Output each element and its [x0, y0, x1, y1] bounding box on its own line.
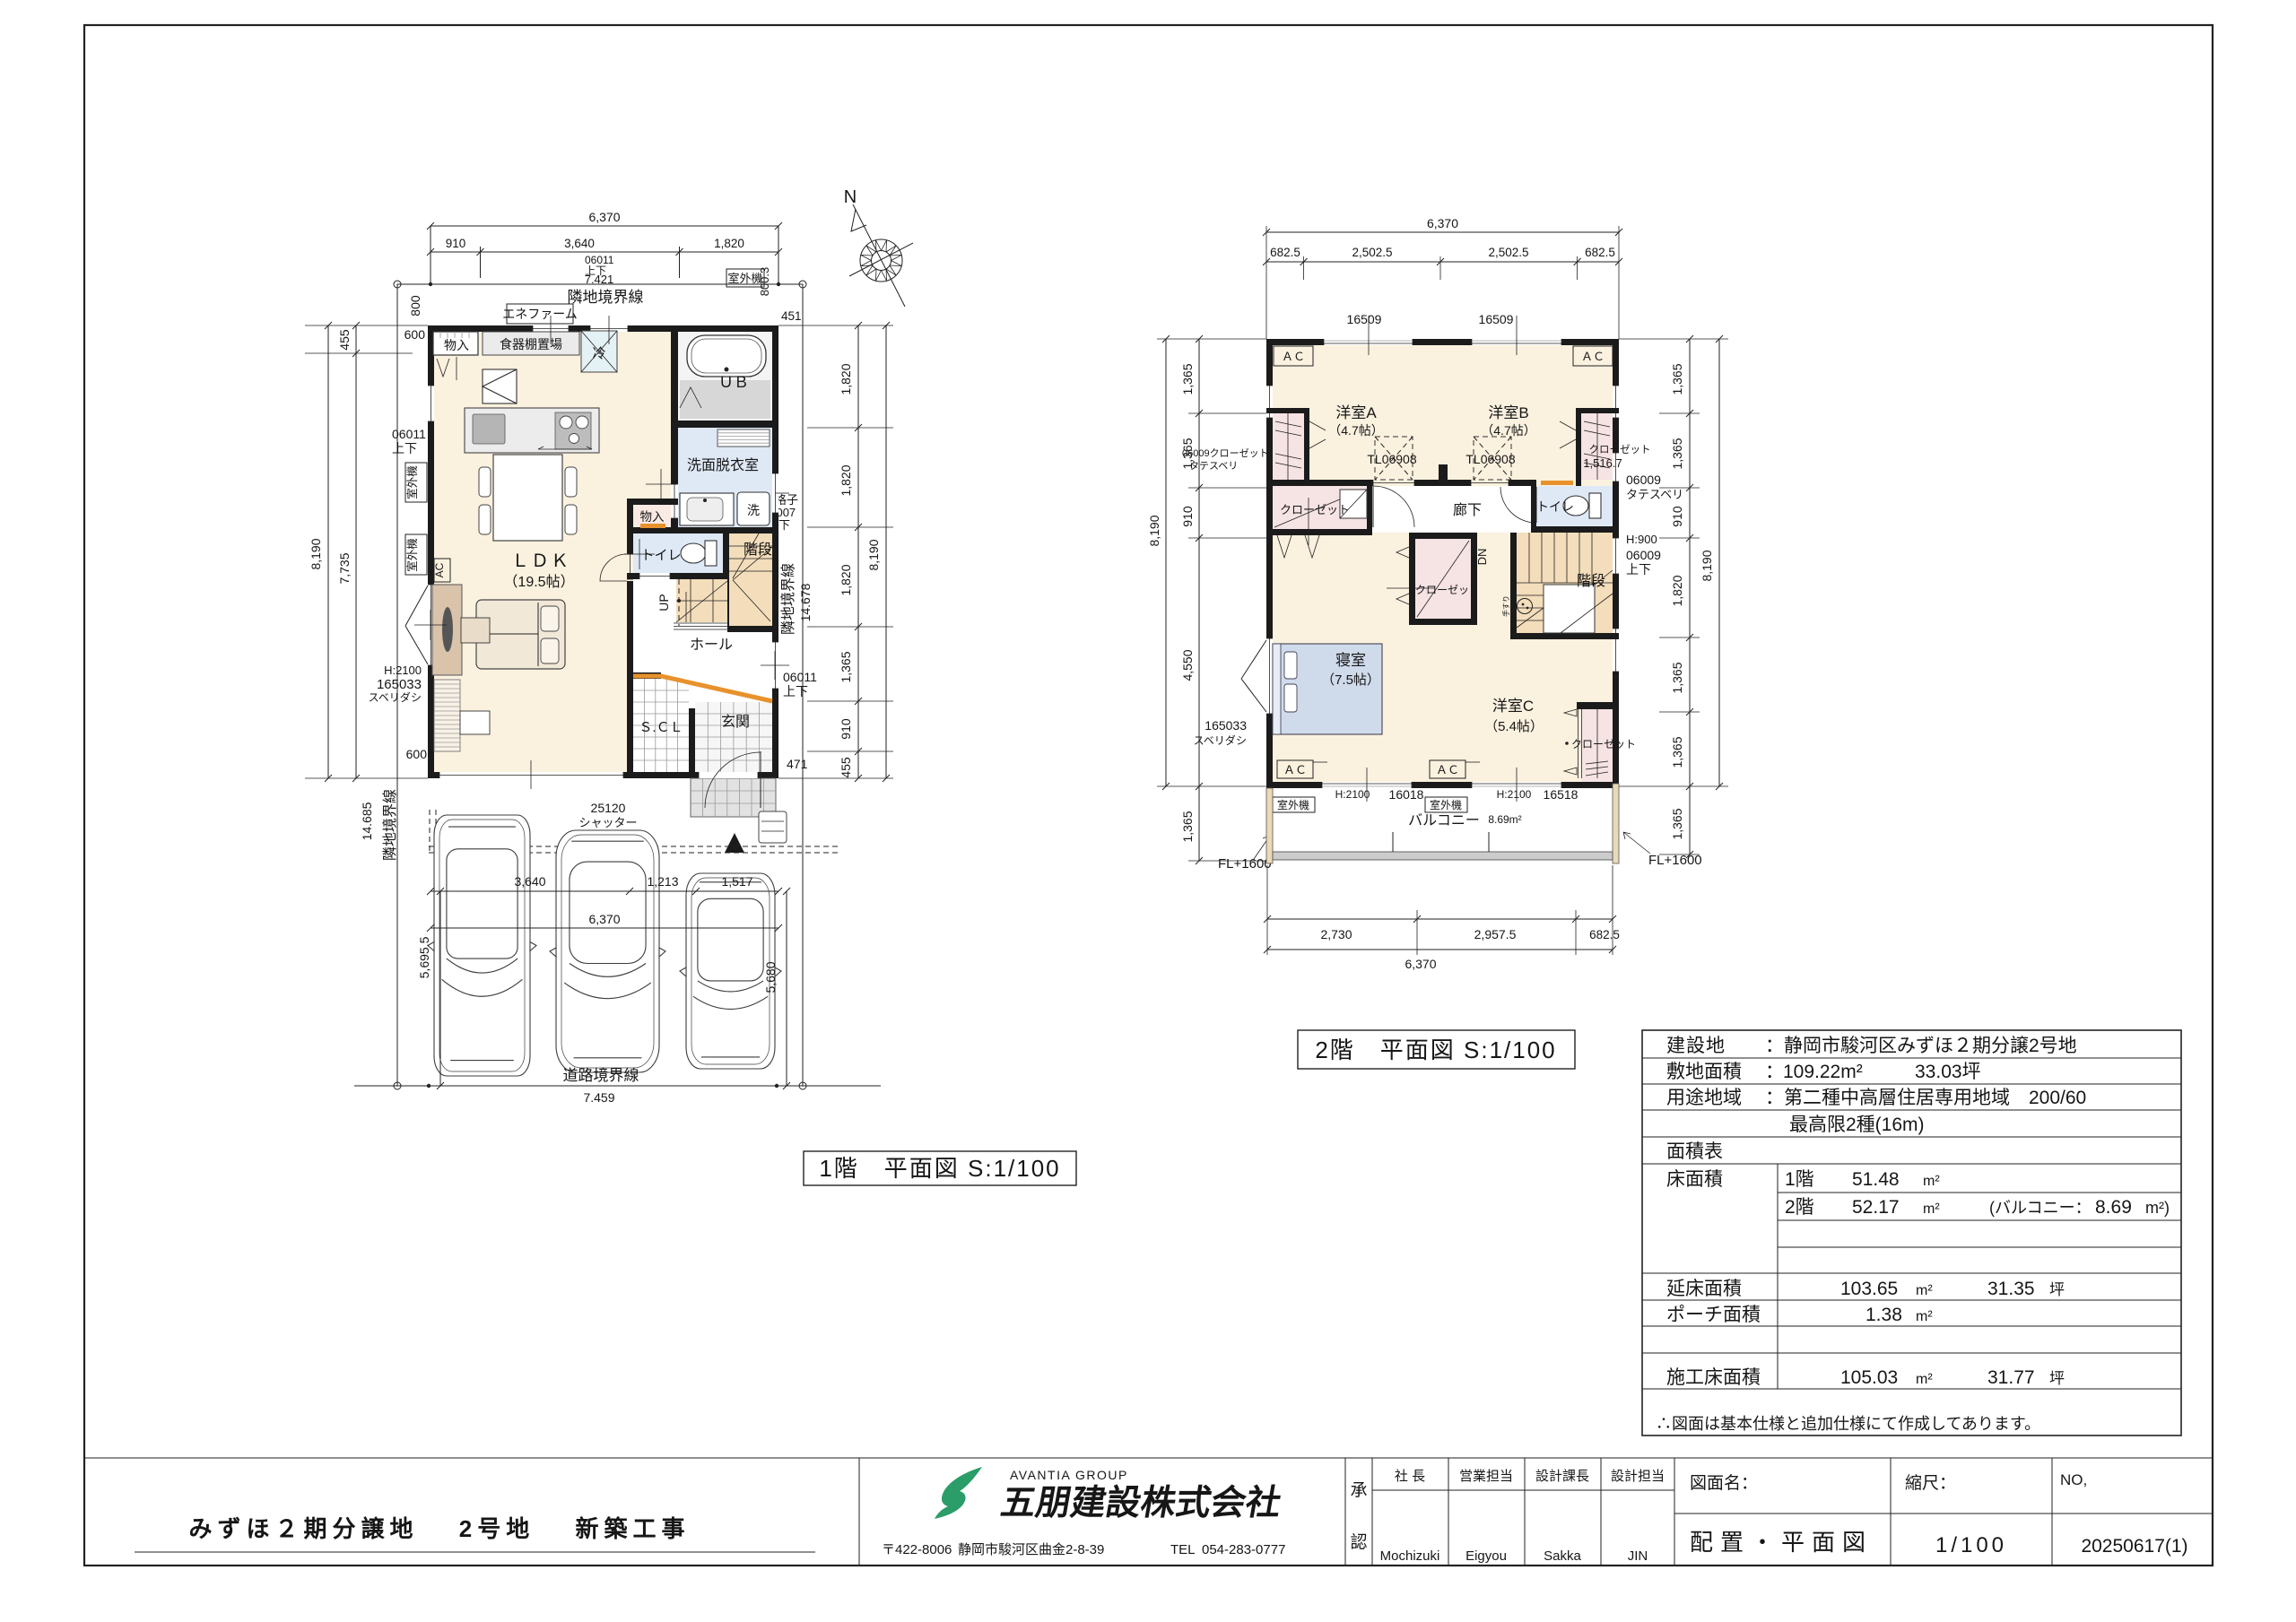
svg-text:20250617(1): 20250617(1) [2081, 1536, 2187, 1557]
svg-text:m²: m² [1916, 1309, 1933, 1324]
svg-text:室外機: 室外機 [1277, 798, 1309, 811]
svg-text:ＡＣ: ＡＣ [1282, 350, 1305, 363]
svg-text:配置・平面図: 配置・平面図 [1690, 1529, 1873, 1556]
svg-text:∴図面は基本仕様と追加仕様にて作成してあります。: ∴図面は基本仕様と追加仕様にて作成してあります。 [1656, 1415, 2040, 1433]
svg-text:054-283-0777: 054-283-0777 [1202, 1542, 1285, 1557]
svg-text:隣地境界線: 隣地境界線 [381, 789, 398, 861]
svg-text:8.69m²: 8.69m² [1488, 813, 1521, 826]
svg-text:設計担当: 設計担当 [1611, 1469, 1665, 1484]
svg-text:物入: 物入 [444, 338, 469, 352]
svg-text:16018: 16018 [1389, 787, 1424, 802]
svg-text:図面名：: 図面名： [1690, 1473, 1758, 1493]
svg-text:6,370: 6,370 [588, 912, 620, 926]
svg-text:m²: m² [1916, 1283, 1933, 1298]
svg-text:1,820: 1,820 [839, 564, 853, 595]
svg-text:51.48: 51.48 [1852, 1169, 1900, 1190]
svg-text:1,365: 1,365 [1670, 438, 1684, 469]
svg-text:6,370: 6,370 [1405, 957, 1436, 971]
svg-text:NO,: NO, [2060, 1471, 2087, 1488]
svg-text:洋室B: 洋室B [1488, 404, 1528, 421]
svg-text:延床面積: 延床面積 [1666, 1279, 1742, 1299]
svg-text:上下: 上下 [783, 684, 808, 698]
svg-text:建設地: 建設地 [1666, 1036, 1726, 1056]
svg-text:面積表: 面積表 [1666, 1141, 1723, 1162]
svg-text:(バルコニー：: (バルコニー： [1989, 1199, 2092, 1217]
svg-text:m²: m² [1923, 1174, 1940, 1189]
svg-text:2,502.5: 2,502.5 [1352, 246, 1392, 259]
svg-text:8,190: 8,190 [1147, 515, 1161, 546]
svg-text:Sakka: Sakka [1544, 1548, 1581, 1564]
svg-text:ＡＣ: ＡＣ [1436, 763, 1459, 776]
svg-text:910: 910 [1180, 506, 1195, 527]
svg-text:910: 910 [446, 237, 466, 250]
svg-text:5,695.5: 5,695.5 [417, 936, 431, 978]
svg-text:8.69: 8.69 [2095, 1197, 2132, 1218]
svg-text:1,213: 1,213 [647, 874, 678, 889]
svg-text:タテスベリ: タテスベリ [1189, 460, 1238, 472]
svg-text:6,370: 6,370 [1427, 216, 1458, 230]
svg-text:認: 認 [1350, 1532, 1367, 1552]
svg-text:109.22m²: 109.22m² [1783, 1062, 1863, 1082]
svg-text:食器棚置場: 食器棚置場 [500, 337, 562, 351]
svg-text:910: 910 [1670, 506, 1684, 527]
svg-text:3,640: 3,640 [564, 237, 595, 250]
svg-text:165033: 165033 [1205, 718, 1247, 733]
svg-text:：静岡市駿河区みずほ２期分譲2号地: ：静岡市駿河区みずほ２期分譲2号地 [1765, 1036, 2077, 1056]
svg-text:1,365: 1,365 [1180, 811, 1195, 842]
svg-text:ホール: ホール [690, 638, 733, 653]
svg-text:最高限2種(16m): 最高限2種(16m) [1789, 1115, 1925, 1135]
svg-text:スベリダシ: スベリダシ [1194, 733, 1247, 747]
svg-text:クローゼット: クローゼット [1571, 738, 1636, 750]
svg-text:1,820: 1,820 [1670, 575, 1684, 606]
svg-text:ＬＤＫ: ＬＤＫ [511, 551, 570, 571]
svg-text:4,550: 4,550 [1180, 649, 1195, 681]
svg-text:8,190: 8,190 [1700, 550, 1714, 581]
svg-text:1,820: 1,820 [839, 464, 853, 496]
svg-text:階段: 階段 [1577, 573, 1605, 589]
svg-text:N: N [844, 187, 857, 207]
svg-text:室外機: 室外機 [405, 465, 419, 499]
svg-text:スベリダシ: スベリダシ [369, 690, 422, 704]
svg-text:165033: 165033 [377, 677, 422, 692]
svg-text:物入: 物入 [640, 510, 665, 524]
svg-text:455: 455 [839, 757, 853, 778]
svg-text:455: 455 [337, 329, 352, 351]
svg-text:トイレ: トイレ [640, 548, 681, 563]
svg-text:坪: 坪 [2049, 1281, 2065, 1298]
svg-text:471: 471 [787, 757, 808, 771]
svg-text:営業担当: 営業担当 [1459, 1469, 1513, 1484]
svg-text:1/100: 1/100 [1935, 1533, 2007, 1557]
svg-text:縮尺：: 縮尺： [1905, 1473, 1956, 1493]
svg-text:坪: 坪 [2049, 1370, 2065, 1387]
svg-text:JIN: JIN [1628, 1548, 1648, 1564]
svg-text:2,502.5: 2,502.5 [1488, 246, 1528, 259]
svg-text:（7.5帖）: （7.5帖） [1321, 672, 1380, 688]
svg-text:洗面脱衣室: 洗面脱衣室 [687, 457, 759, 473]
svg-text:みずほ２期分譲地 2号地 新築工事: みずほ２期分譲地 2号地 新築工事 [189, 1515, 691, 1542]
svg-text:1階: 1階 [1785, 1169, 1814, 1190]
svg-text:FL+1600: FL+1600 [1218, 856, 1272, 872]
svg-text:06011: 06011 [783, 670, 817, 684]
svg-text:（4.7帖）: （4.7帖） [1328, 423, 1383, 438]
svg-text:3,640: 3,640 [514, 874, 545, 889]
svg-text:910: 910 [839, 718, 853, 740]
svg-text:1,820: 1,820 [714, 237, 744, 250]
svg-text:上下: 上下 [1626, 562, 1651, 577]
svg-text:洗: 洗 [747, 503, 760, 517]
svg-text:：: ： [1765, 1062, 1784, 1082]
svg-text:TL06908: TL06908 [1367, 452, 1416, 466]
svg-text:（5.4帖）: （5.4帖） [1484, 719, 1544, 734]
svg-text:800: 800 [408, 295, 422, 317]
svg-text:8,190: 8,190 [866, 539, 881, 570]
svg-text:1,365: 1,365 [839, 651, 853, 682]
svg-text:洋室A: 洋室A [1335, 404, 1377, 421]
svg-text:冷: 冷 [592, 346, 605, 361]
svg-text:上下: 上下 [585, 265, 606, 277]
svg-text:600: 600 [406, 747, 428, 761]
svg-text:用途地域: 用途地域 [1666, 1088, 1742, 1108]
svg-text:TL06908: TL06908 [1465, 452, 1515, 466]
svg-text:2,730: 2,730 [1320, 927, 1352, 941]
svg-text:7,735: 7,735 [337, 552, 352, 584]
svg-text:14.678: 14.678 [798, 583, 813, 621]
svg-text:室外機: 室外機 [1430, 798, 1462, 811]
svg-text:シャッター: シャッター [578, 816, 637, 829]
svg-text:31.35: 31.35 [1987, 1279, 2035, 1299]
svg-text:H:2100: H:2100 [1335, 788, 1370, 801]
svg-text:トイレ: トイレ [1536, 499, 1574, 514]
svg-text:手すり: 手すり [1501, 595, 1510, 617]
svg-text:103.65: 103.65 [1840, 1279, 1898, 1299]
svg-text:6,370: 6,370 [588, 210, 620, 224]
svg-text:床面積: 床面積 [1666, 1169, 1723, 1190]
svg-text:社 長: 社 長 [1395, 1469, 1425, 1484]
svg-text:玄関: 玄関 [721, 714, 750, 730]
svg-text:寝室: 寝室 [1335, 651, 1366, 669]
svg-text:FL+1600: FL+1600 [1648, 853, 1702, 868]
svg-text:：第二種中高層住居専用地域 200/60: ：第二種中高層住居専用地域 200/60 [1765, 1088, 2086, 1108]
svg-text:静岡市駿河区曲金2-8-39: 静岡市駿河区曲金2-8-39 [958, 1542, 1104, 1557]
svg-text:2階 平面図 S:1/100: 2階 平面図 S:1/100 [1315, 1037, 1556, 1063]
svg-text:敷地面積: 敷地面積 [1666, 1062, 1742, 1082]
svg-text:〒422-8006: 〒422-8006 [882, 1542, 952, 1557]
svg-text:承: 承 [1350, 1480, 1367, 1500]
svg-text:道路境界線: 道路境界線 [563, 1067, 639, 1084]
svg-text:クローゼット: クローゼット [1280, 503, 1350, 516]
svg-text:16518: 16518 [1544, 787, 1578, 802]
svg-text:バルコニー: バルコニー [1408, 813, 1480, 828]
svg-text:14.685: 14.685 [360, 802, 374, 840]
svg-text:1,517: 1,517 [721, 874, 752, 889]
svg-text:1,820: 1,820 [839, 363, 853, 395]
svg-text:Eigyou: Eigyou [1465, 1548, 1507, 1564]
svg-text:洋室C: 洋室C [1492, 698, 1534, 715]
svg-text:H:2100: H:2100 [1497, 788, 1532, 801]
svg-text:16509: 16509 [1347, 312, 1382, 326]
svg-text:DN: DN [1475, 549, 1489, 566]
svg-text:2階: 2階 [1785, 1197, 1814, 1218]
svg-text:UP: UP [657, 594, 671, 611]
svg-text:105.03: 105.03 [1840, 1367, 1898, 1388]
svg-text:AC: AC [433, 562, 446, 577]
svg-text:m²): m²) [2145, 1199, 2170, 1217]
svg-text:ＡＣ: ＡＣ [1283, 763, 1307, 776]
svg-text:7.459: 7.459 [583, 1090, 614, 1105]
svg-text:33.03坪: 33.03坪 [1915, 1062, 1981, 1082]
svg-text:06011: 06011 [392, 427, 426, 441]
svg-text:室外機: 室外機 [727, 272, 762, 285]
svg-text:Ｓ.ＣＬ: Ｓ.ＣＬ [639, 720, 683, 735]
svg-text:m²: m² [1923, 1201, 1940, 1217]
svg-text:5,680: 5,680 [763, 961, 778, 993]
svg-text:H:2100: H:2100 [384, 664, 422, 677]
svg-text:682.5: 682.5 [1270, 246, 1300, 259]
svg-text:16509: 16509 [1479, 312, 1514, 326]
svg-text:タテスベリ: タテスベリ [1626, 488, 1683, 501]
svg-text:25120: 25120 [591, 801, 626, 815]
svg-text:隣地境界線: 隣地境界線 [779, 563, 796, 635]
svg-text:600: 600 [404, 327, 426, 342]
svg-text:階段: 階段 [744, 542, 772, 558]
svg-text:隣地境界線: 隣地境界線 [568, 289, 644, 306]
svg-text:設計課長: 設計課長 [1535, 1469, 1589, 1484]
svg-text:エネファーム: エネファーム [502, 307, 578, 321]
svg-text:上下: 上下 [392, 441, 417, 455]
svg-text:1,365: 1,365 [1670, 808, 1684, 839]
svg-text:1,365: 1,365 [1670, 736, 1684, 768]
svg-text:m²: m² [1916, 1372, 1933, 1387]
svg-text:1,365: 1,365 [1670, 662, 1684, 693]
svg-text:2,957.5: 2,957.5 [1474, 927, 1517, 941]
svg-text:五朋建設株式会社: 五朋建設株式会社 [997, 1483, 1284, 1522]
svg-text:Mochizuki: Mochizuki [1380, 1548, 1440, 1564]
svg-text:52.17: 52.17 [1852, 1197, 1900, 1218]
svg-text:クローゼット: クローゼット [1589, 444, 1651, 455]
svg-text:ＡＣ: ＡＣ [1581, 350, 1605, 363]
svg-text:ＵＢ: ＵＢ [718, 374, 749, 391]
svg-text:1.38: 1.38 [1865, 1305, 1902, 1325]
svg-text:室外機: 室外機 [405, 538, 419, 572]
svg-text:AVANTIA GROUP: AVANTIA GROUP [1010, 1468, 1128, 1482]
svg-text:クローゼッ: クローゼッ [1415, 584, 1469, 596]
svg-text:06009: 06009 [1626, 548, 1661, 562]
svg-text:施工床面積: 施工床面積 [1666, 1367, 1761, 1388]
svg-text:廊下: 廊下 [1453, 502, 1482, 518]
svg-text:682.5: 682.5 [1589, 928, 1620, 941]
svg-text:06009: 06009 [1626, 473, 1661, 487]
svg-text:682.5: 682.5 [1585, 246, 1615, 259]
svg-text:06009クローゼット: 06009クローゼット [1182, 447, 1269, 459]
svg-text:H:900: H:900 [1626, 533, 1657, 546]
svg-text:1,365: 1,365 [1180, 363, 1195, 395]
svg-text:31.77: 31.77 [1987, 1367, 2035, 1388]
svg-text:8,190: 8,190 [309, 538, 323, 569]
svg-text:1階 平面図 S:1/100: 1階 平面図 S:1/100 [819, 1155, 1060, 1182]
svg-text:ポーチ面積: ポーチ面積 [1666, 1305, 1761, 1325]
svg-text:1,365: 1,365 [1670, 363, 1684, 395]
svg-text:1,516.7: 1,516.7 [1583, 456, 1622, 470]
svg-text:（19.5帖）: （19.5帖） [503, 574, 574, 590]
svg-text:TEL: TEL [1170, 1542, 1196, 1557]
svg-text:451: 451 [781, 309, 802, 323]
svg-text:（4.7帖）: （4.7帖） [1481, 423, 1535, 438]
